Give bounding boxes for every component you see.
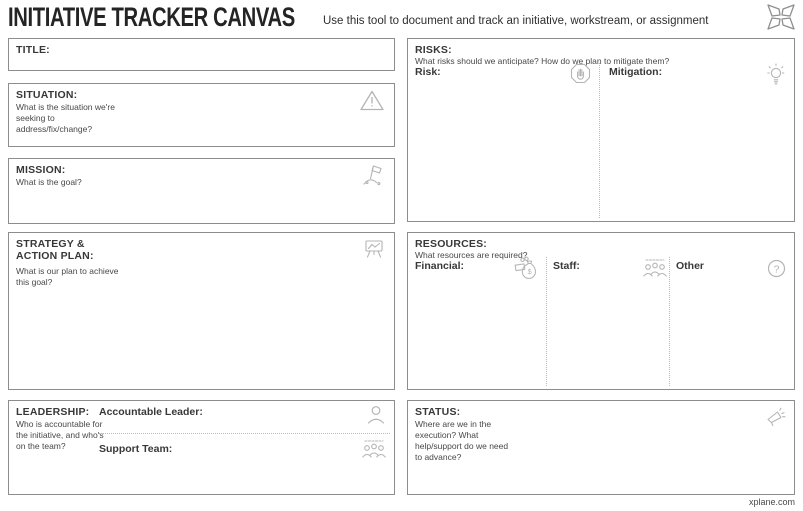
xplane-site-link[interactable]: xplane.com — [749, 497, 795, 507]
mitigation-input-area[interactable] — [602, 81, 792, 219]
resources-dotted-divider-2 — [669, 257, 670, 386]
mitigation-label: Mitigation: — [609, 66, 662, 78]
leadership-panel: LEADERSHIP: Who is accountable for the i… — [8, 400, 395, 495]
strategy-description: What is our plan to achieve this goal? — [16, 266, 120, 288]
page-title: INITIATIVE TRACKER CANVAS — [8, 2, 295, 33]
resources-panel-label: RESOURCES: — [415, 238, 487, 250]
status-panel: STATUS: Where are we in the execution? W… — [407, 400, 795, 495]
situation-description: What is the situation we're seeking to a… — [16, 102, 116, 135]
title-panel: TITLE: — [8, 38, 395, 71]
risk-label: Risk: — [415, 66, 441, 78]
status-panel-label: STATUS: — [415, 406, 460, 418]
other-label: Other — [676, 260, 704, 272]
strategy-panel-label: STRATEGY & ACTION PLAN: — [16, 238, 120, 262]
megaphone-icon — [765, 405, 787, 427]
initiative-tracker-canvas: INITIATIVE TRACKER CANVAS Use this tool … — [0, 0, 803, 511]
risk-input-area[interactable] — [410, 81, 596, 219]
svg-text:$: $ — [528, 269, 532, 276]
situation-panel: SITUATION: What is the situation we're s… — [8, 83, 395, 147]
leadership-description: Who is accountable for the initiative, a… — [16, 419, 104, 452]
support-team-label: Support Team: — [99, 443, 172, 455]
chart-easel-icon — [363, 238, 385, 259]
accountable-leader-label: Accountable Leader: — [99, 406, 203, 418]
flag-on-summit-icon — [361, 163, 385, 188]
stop-hand-icon — [570, 63, 591, 84]
mission-input-area[interactable] — [9, 159, 394, 223]
question-circle-icon: ? — [767, 259, 786, 278]
xplane-logo-icon — [766, 3, 796, 31]
status-description: Where are we in the execution? What help… — [415, 419, 515, 463]
staff-label: Staff: — [553, 260, 580, 272]
resources-description: What resources are required? — [415, 250, 775, 261]
risks-description: What risks should we anticipate? How do … — [415, 56, 775, 67]
title-panel-label: TITLE: — [16, 44, 50, 56]
person-icon — [366, 404, 386, 426]
mission-panel: MISSION: What is the goal? — [8, 158, 395, 224]
risks-panel-label: RISKS: — [415, 44, 452, 56]
svg-text:?: ? — [774, 263, 780, 275]
resources-dotted-divider-1 — [546, 257, 547, 386]
other-input-area[interactable] — [673, 275, 792, 387]
financial-input-area[interactable] — [410, 275, 542, 387]
staff-input-area[interactable] — [550, 275, 666, 387]
team-icon — [642, 258, 668, 279]
warning-triangle-icon — [359, 89, 385, 112]
leadership-panel-label: LEADERSHIP: — [16, 406, 89, 418]
leadership-dotted-divider — [99, 433, 390, 434]
money-bag-icon: $ — [514, 255, 541, 281]
situation-panel-label: SITUATION: — [16, 89, 77, 101]
page-subtitle: Use this tool to document and track an i… — [323, 15, 708, 27]
mission-description: What is the goal? — [16, 177, 216, 188]
risks-panel: RISKS: What risks should we anticipate? … — [407, 38, 795, 222]
strategy-panel: STRATEGY & ACTION PLAN: What is our plan… — [8, 232, 395, 390]
resources-panel: RESOURCES: What resources are required? … — [407, 232, 795, 390]
team-icon — [361, 439, 387, 460]
title-input-area[interactable] — [9, 39, 394, 70]
lightbulb-icon — [766, 62, 786, 88]
risks-dotted-divider — [599, 63, 600, 218]
mission-panel-label: MISSION: — [16, 164, 65, 176]
financial-label: Financial: — [415, 260, 464, 272]
